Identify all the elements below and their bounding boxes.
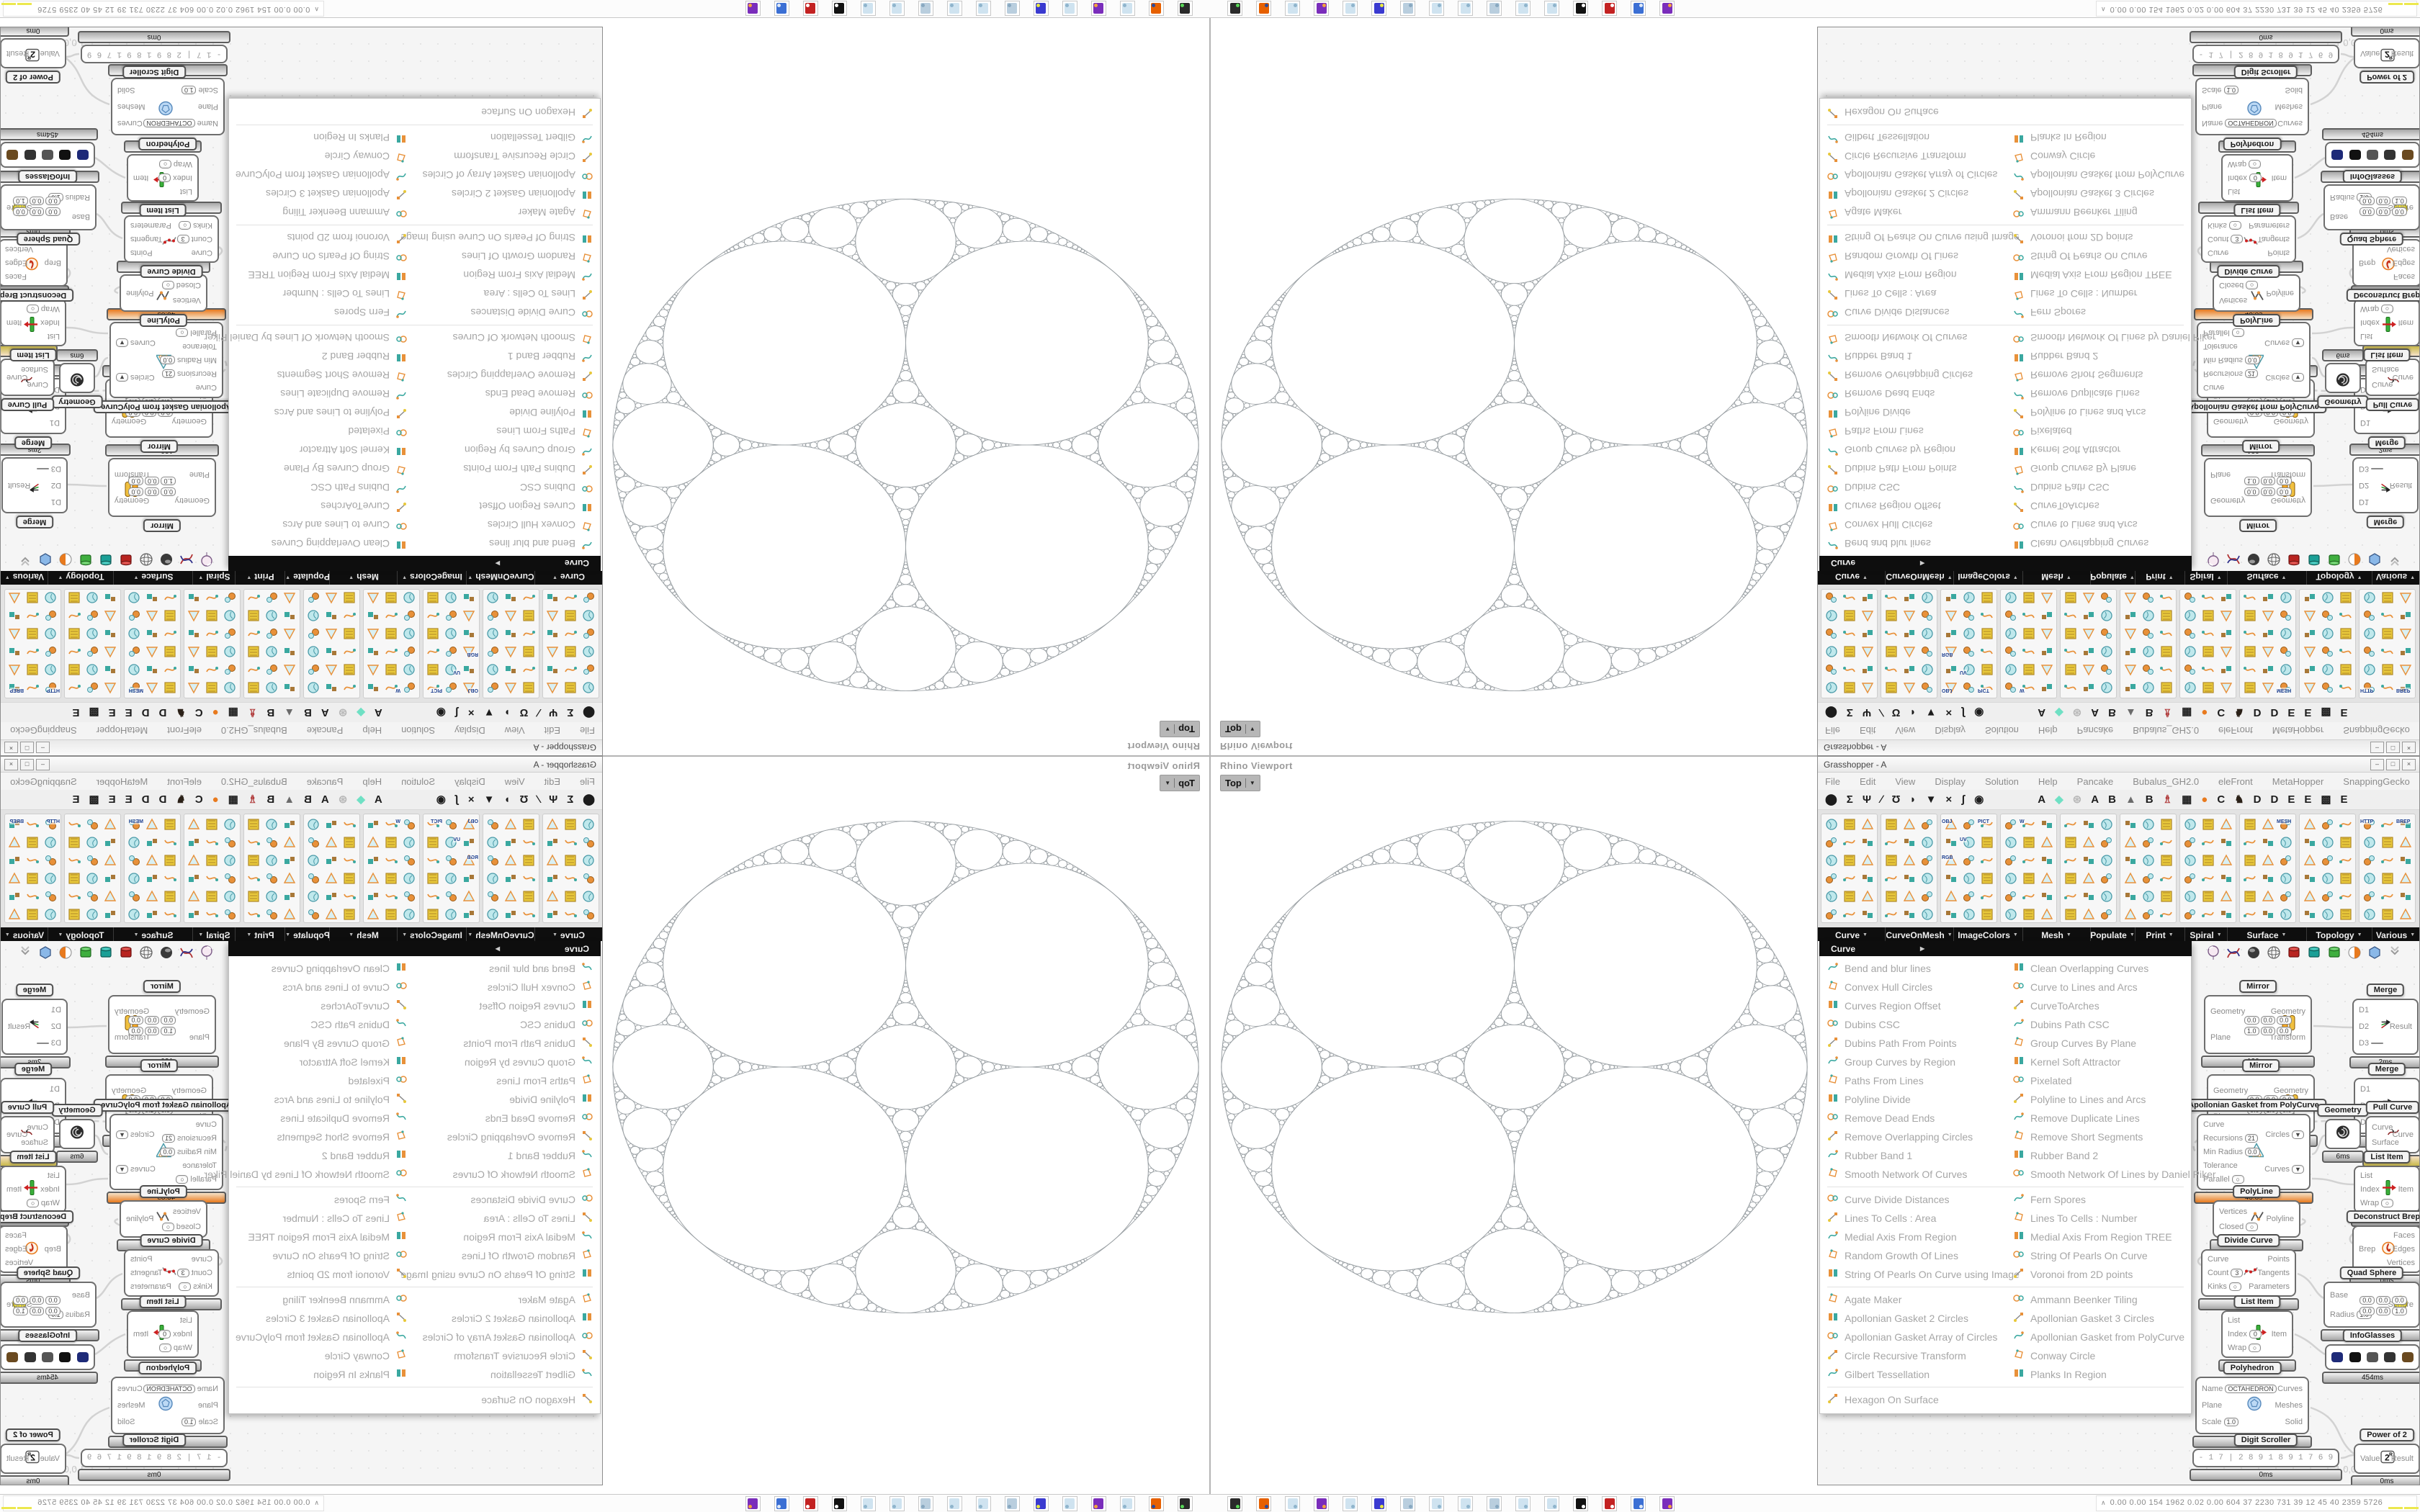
tab-icon[interactable]: A	[321, 707, 329, 718]
menu-item[interactable]: Smooth Network Of Curves	[1827, 1165, 1967, 1184]
palette-icon[interactable]	[1942, 833, 1960, 851]
palette-icon[interactable]	[323, 905, 341, 923]
plane-value[interactable]: 1.0	[2244, 477, 2259, 485]
tab-icon[interactable]: B	[304, 794, 312, 805]
menu-item[interactable]: String Of Pearls On Curve	[272, 247, 407, 266]
palette-icon[interactable]	[161, 905, 179, 923]
palette-icon[interactable]	[544, 625, 562, 643]
palette-icon[interactable]	[1882, 851, 1900, 869]
palette-icon[interactable]	[1822, 625, 1840, 643]
palette-icon[interactable]	[84, 905, 102, 923]
palette-icon[interactable]	[502, 815, 520, 833]
taskbar-notepad-icon[interactable]	[1515, 1496, 1531, 1511]
tab-icon[interactable]: ▦	[228, 794, 238, 805]
menu-item[interactable]: String Of Pearls On Curve using Image	[1827, 228, 2020, 247]
palette-icon[interactable]	[2318, 815, 2336, 833]
group-print[interactable]: Print▼	[235, 927, 285, 942]
group-various[interactable]: Various▼	[0, 570, 48, 585]
param-value[interactable]: ○	[179, 221, 191, 230]
digit[interactable]: -	[2199, 50, 2204, 58]
menu-item[interactable]: Apollonian Gasket 3 Circles	[2013, 184, 2154, 203]
palette-icon[interactable]	[400, 869, 418, 887]
palette-icon[interactable]	[2121, 589, 2139, 607]
menu-item[interactable]: Remove Dead Ends	[1827, 384, 1935, 403]
menu-item[interactable]: String Of Pearls On Curve using Image	[1827, 1265, 2020, 1284]
palette-icon[interactable]	[2336, 833, 2354, 851]
menu-item[interactable]: Conway Circle	[325, 1346, 407, 1365]
menu-item[interactable]: Remove Dead Ends	[485, 384, 593, 403]
palette-icon[interactable]	[42, 643, 60, 661]
palette-icon[interactable]	[580, 607, 598, 625]
palette-icon[interactable]	[2300, 679, 2318, 697]
component-geometry[interactable]	[59, 1119, 95, 1149]
infoglasses-icon[interactable]	[2331, 150, 2343, 160]
taskbar-firefox-icon[interactable]	[1149, 1496, 1164, 1511]
palette-icon[interactable]	[2396, 833, 2414, 851]
palette-icon[interactable]	[502, 869, 520, 887]
palette-icon[interactable]	[484, 905, 502, 923]
taskbar-red-app-icon[interactable]	[1602, 1, 1617, 16]
palette-icon[interactable]	[66, 887, 84, 905]
digit[interactable]: 9	[2259, 1454, 2264, 1462]
palette-icon[interactable]	[484, 661, 502, 679]
digit[interactable]: 9	[157, 50, 162, 58]
palette-icon[interactable]	[323, 643, 341, 661]
menu-item[interactable]: Gilbert Tessellation	[490, 1365, 593, 1384]
tab-icon[interactable]: ▼	[484, 794, 495, 805]
menu-item[interactable]: Pixelated	[348, 422, 407, 441]
taskbar-notepad-icon[interactable]	[1062, 1496, 1077, 1511]
group-populate[interactable]: Populate▼	[2090, 570, 2136, 585]
palette-icon[interactable]	[2318, 887, 2336, 905]
palette-icon[interactable]	[2277, 905, 2295, 923]
palette-icon[interactable]	[1840, 607, 1858, 625]
infoglasses-icon[interactable]	[6, 1352, 18, 1362]
menu-item[interactable]: Fern Spores	[2013, 303, 2086, 322]
digit[interactable]: 8	[167, 1454, 172, 1462]
palette-icon[interactable]	[1858, 589, 1876, 607]
palette-icon[interactable]	[341, 905, 359, 923]
palette-icon[interactable]	[1918, 905, 1936, 923]
menu-item[interactable]: Medial Axis From Region TREE	[248, 1228, 407, 1246]
palette-icon[interactable]	[2061, 851, 2079, 869]
menu-snappinggecko[interactable]: SnappingGecko	[2343, 726, 2410, 737]
palette-icon[interactable]	[281, 815, 299, 833]
digit[interactable]: 8	[2278, 50, 2283, 58]
param-value[interactable]: 0.0	[160, 1148, 175, 1156]
tab-icon[interactable]: E	[72, 794, 79, 805]
taskbar-notepad-icon[interactable]	[1458, 1496, 1473, 1511]
tab-icon[interactable]: E	[125, 794, 133, 805]
tab-icon[interactable]: ʃ	[1961, 794, 1965, 805]
palette-icon[interactable]	[102, 905, 120, 923]
palette-icon[interactable]	[382, 643, 400, 661]
palette-icon[interactable]	[2121, 607, 2139, 625]
palette-icon[interactable]	[1960, 905, 1978, 923]
menu-item[interactable]: Ammann Beenker Tiling	[282, 203, 407, 222]
plane-value[interactable]: 0.0	[145, 1027, 160, 1035]
node-canvas[interactable]: MirrorGeometryPlaneGeometryTransform0.00…	[1, 27, 602, 571]
palette-icon[interactable]	[424, 815, 442, 833]
palette-icon[interactable]	[2157, 625, 2175, 643]
group-topology[interactable]: Topology▼	[48, 927, 114, 942]
palette-icon[interactable]	[1822, 833, 1840, 851]
digit[interactable]: 8	[2278, 1454, 2283, 1462]
menu-item[interactable]: Paths From Lines	[1827, 422, 1924, 441]
palette-icon[interactable]	[1942, 607, 1960, 625]
tab-icon[interactable]: Ʊ	[520, 794, 529, 805]
palette-icon[interactable]	[245, 679, 263, 697]
tab-icon[interactable]: ◆	[357, 707, 365, 718]
group-surface[interactable]: Surface▼	[113, 570, 193, 585]
component-poly[interactable]: NameOCTAHEDRONPlaneScale1.0CurvesMeshesS…	[111, 1377, 225, 1434]
tab-icon[interactable]: ⬤	[583, 707, 595, 718]
digit[interactable]: 7	[2308, 1454, 2313, 1462]
taskbar-notepad-icon[interactable]	[1544, 1496, 1559, 1511]
palette-icon[interactable]	[1918, 851, 1936, 869]
palette-icon[interactable]	[382, 869, 400, 887]
taskbar-ink-app-icon[interactable]	[1573, 1, 1588, 16]
palette-icon[interactable]	[161, 589, 179, 607]
dropdown-header[interactable]: Curve▶	[228, 941, 601, 956]
component-pow[interactable]: ValueResult2R	[0, 1444, 66, 1474]
palette-icon[interactable]	[2020, 905, 2038, 923]
palette-icon[interactable]	[84, 815, 102, 833]
component-divide[interactable]: CurveCount3Kinks○PointsTangentsParameter…	[2201, 1249, 2296, 1297]
plane-value[interactable]: 0.0	[13, 207, 28, 216]
menu-view[interactable]: View	[505, 776, 525, 787]
tab-icon[interactable]: A	[2091, 794, 2099, 805]
plane-value[interactable]: 1.0	[13, 197, 28, 205]
tab-icon[interactable]: A	[2091, 707, 2099, 718]
tab-icon[interactable]: ▼	[1926, 707, 1937, 718]
plane-value[interactable]: 0.0	[30, 1296, 45, 1305]
palette-icon[interactable]	[484, 643, 502, 661]
group-curveonmesh[interactable]: CurveOnMesh▼	[1885, 927, 1954, 942]
palette-icon[interactable]	[245, 851, 263, 869]
plane-value[interactable]: 0.0	[30, 207, 45, 216]
palette-icon[interactable]	[2157, 589, 2175, 607]
group-surface[interactable]: Surface▼	[113, 927, 193, 942]
menu-item[interactable]: Lines To Cells : Area	[484, 1209, 593, 1228]
palette-icon[interactable]	[1900, 643, 1918, 661]
apollonian-gasket-drawing[interactable]	[606, 813, 1205, 1321]
palette-icon[interactable]	[502, 643, 520, 661]
menu-metahopper[interactable]: MetaHopper	[97, 726, 148, 737]
maximize-button[interactable]: □	[2386, 759, 2400, 770]
menu-item[interactable]: Polyline Divide	[509, 1090, 593, 1109]
menu-item[interactable]: Dubins Path CSC	[310, 478, 407, 497]
palette-icon[interactable]	[2259, 833, 2277, 851]
palette-icon[interactable]	[24, 887, 42, 905]
palette-icon[interactable]	[143, 815, 161, 833]
param-value[interactable]: OCTAHEDRON	[2225, 1385, 2276, 1393]
menu-pancake[interactable]: Pancake	[2077, 726, 2114, 737]
taskbar-owl-app-icon[interactable]	[1091, 1, 1106, 16]
palette-icon[interactable]	[1942, 905, 1960, 923]
palette-icon[interactable]	[1840, 851, 1858, 869]
palette-icon[interactable]	[1822, 607, 1840, 625]
menu-item[interactable]: Voronoi from 2D points	[2013, 1265, 2133, 1284]
plane-value[interactable]: 0.0	[45, 1307, 60, 1315]
palette-icon[interactable]	[323, 661, 341, 679]
palette-icon[interactable]	[2259, 679, 2277, 697]
tab-icon[interactable]: B	[304, 707, 312, 718]
menu-item[interactable]: Conway Circle	[2013, 147, 2095, 166]
param-value[interactable]: ○	[2249, 1344, 2261, 1352]
palette-icon[interactable]	[2378, 905, 2396, 923]
group-imagecolors[interactable]: ImageColors▼	[397, 570, 467, 585]
digit[interactable]: -	[2199, 1454, 2204, 1462]
tab-icon[interactable]: A	[321, 794, 329, 805]
digit[interactable]: 9	[2259, 50, 2264, 58]
palette-icon[interactable]	[341, 815, 359, 833]
palette-icon[interactable]	[544, 679, 562, 697]
palette-icon[interactable]	[185, 607, 203, 625]
palette-icon[interactable]	[2097, 625, 2115, 643]
param-value[interactable]: 1.0	[181, 1418, 197, 1426]
palette-icon[interactable]	[2157, 851, 2175, 869]
tab-icon[interactable]: ×	[468, 707, 475, 718]
palette-icon[interactable]	[2079, 643, 2097, 661]
taskbar-scroll-icon[interactable]	[1005, 1, 1020, 16]
taskbar-scroll-icon[interactable]	[1400, 1496, 1415, 1511]
param-value[interactable]: 0	[2249, 174, 2262, 182]
menu-bubalus_gh2.0[interactable]: Bubalus_GH2.0	[221, 776, 287, 787]
palette-icon[interactable]	[2300, 887, 2318, 905]
palette-icon[interactable]	[281, 851, 299, 869]
palette-icon[interactable]	[2396, 661, 2414, 679]
taskbar-notepad-icon[interactable]	[1458, 1, 1473, 16]
palette-icon[interactable]	[1882, 905, 1900, 923]
param-value[interactable]: ▼	[116, 1130, 128, 1139]
menu-item[interactable]: Curve to Lines and Arcs	[282, 516, 407, 534]
palette-icon[interactable]	[2199, 815, 2217, 833]
minimize-button[interactable]: –	[2370, 759, 2384, 770]
group-mesh[interactable]: Mesh▼	[2022, 927, 2091, 942]
palette-icon[interactable]	[221, 851, 239, 869]
tab-icon[interactable]: A	[375, 794, 382, 805]
palette-icon[interactable]	[544, 607, 562, 625]
viewport-top-button[interactable]: Top▼	[1220, 721, 1260, 737]
palette-icon[interactable]	[2396, 905, 2414, 923]
tab-icon[interactable]: ♗	[248, 794, 257, 805]
palette-icon[interactable]	[245, 905, 263, 923]
component-merge[interactable]: D1D2D3 Result	[1, 999, 68, 1055]
menu-item[interactable]: Lines To Cells : Number	[283, 1209, 407, 1228]
palette-icon[interactable]	[2139, 607, 2157, 625]
sphere-orange-icon[interactable]	[58, 552, 73, 567]
palette-icon[interactable]	[1978, 887, 1996, 905]
tab-icon[interactable]: ▲	[284, 794, 295, 805]
plane-value[interactable]: 0.0	[145, 477, 160, 485]
hexagon-blue-icon[interactable]	[2367, 945, 2383, 960]
palette-icon[interactable]	[2061, 833, 2079, 851]
palette-icon[interactable]	[2318, 625, 2336, 643]
palette-icon[interactable]	[460, 887, 478, 905]
menu-item[interactable]: Polyline Divide	[509, 403, 593, 422]
palette-icon[interactable]	[323, 887, 341, 905]
tab-icon[interactable]: B	[2108, 707, 2116, 718]
menu-item[interactable]: Lines To Cells : Number	[283, 284, 407, 303]
component-listitem[interactable]: ListIndex0Wrap○Item	[127, 154, 199, 202]
palette-icon[interactable]	[281, 661, 299, 679]
menu-pancake[interactable]: Pancake	[307, 726, 344, 737]
palette-icon[interactable]	[185, 589, 203, 607]
palette-icon[interactable]	[2020, 833, 2038, 851]
menu-item[interactable]: Group Curves By Plane	[284, 459, 407, 478]
menu-edit[interactable]: Edit	[544, 776, 560, 787]
menu-item[interactable]: Pixelated	[2013, 1071, 2072, 1090]
digit[interactable]: 1	[207, 50, 212, 58]
menu-item[interactable]: Random Growth Of Lines	[462, 1246, 593, 1265]
palette-icon[interactable]	[1822, 589, 1840, 607]
palette-icon[interactable]	[2038, 607, 2056, 625]
palette-icon[interactable]	[2259, 887, 2277, 905]
palette-icon[interactable]	[2318, 607, 2336, 625]
tab-icon[interactable]: Σ	[567, 794, 573, 805]
tab-icon[interactable]: ▦	[2182, 707, 2192, 718]
palette-icon[interactable]	[2217, 625, 2235, 643]
param-value[interactable]: ○	[2232, 1175, 2244, 1184]
palette-icon[interactable]	[2360, 625, 2378, 643]
palette-icon[interactable]	[1978, 851, 1996, 869]
palette-icon[interactable]	[245, 661, 263, 679]
digit[interactable]: 9	[127, 1454, 132, 1462]
digit[interactable]: 7	[2218, 1454, 2223, 1462]
palette-icon[interactable]	[323, 607, 341, 625]
param-value[interactable]: ○	[2229, 221, 2241, 230]
plane-value[interactable]: 1.0	[13, 1307, 28, 1315]
palette-icon[interactable]	[1882, 607, 1900, 625]
palette-icon[interactable]	[341, 851, 359, 869]
menu-metahopper[interactable]: MetaHopper	[2272, 726, 2324, 737]
component-mirror[interactable]: GeometryPlaneGeometryTransform0.00.00.01…	[2204, 995, 2312, 1054]
menu-snappinggecko[interactable]: SnappingGecko	[10, 726, 77, 737]
palette-icon[interactable]	[484, 815, 502, 833]
group-spiral[interactable]: Spiral▼	[192, 570, 236, 585]
menu-snappinggecko[interactable]: SnappingGecko	[10, 776, 77, 787]
palette-icon[interactable]	[442, 887, 460, 905]
palette-icon[interactable]	[2079, 625, 2097, 643]
palette-icon[interactable]	[84, 679, 102, 697]
palette-icon[interactable]	[460, 905, 478, 923]
plane-value[interactable]: 0.0	[2359, 207, 2375, 216]
plane-value[interactable]: 0.0	[2392, 207, 2407, 216]
palette-icon[interactable]	[2396, 887, 2414, 905]
palette-icon[interactable]	[42, 833, 60, 851]
palette-icon[interactable]	[1900, 851, 1918, 869]
palette-icon[interactable]	[2079, 887, 2097, 905]
palette-icon[interactable]	[1960, 887, 1978, 905]
tab-icon[interactable]: D	[142, 707, 150, 718]
palette-icon[interactable]	[484, 869, 502, 887]
menu-item[interactable]: Voronoi from 2D points	[287, 228, 407, 247]
palette-icon[interactable]	[2020, 625, 2038, 643]
palette-icon[interactable]	[1900, 589, 1918, 607]
palette-icon[interactable]	[1882, 887, 1900, 905]
plane-value[interactable]: 0.0	[2261, 1027, 2276, 1035]
menu-item[interactable]: Curve Divide Distances	[471, 1190, 593, 1209]
param-value[interactable]: 3	[177, 235, 189, 243]
palette-icon[interactable]	[66, 589, 84, 607]
palette-icon[interactable]	[502, 589, 520, 607]
palette-icon[interactable]	[1960, 589, 1978, 607]
palette-icon[interactable]	[2181, 679, 2199, 697]
group-surface[interactable]: Surface▼	[2227, 927, 2307, 942]
palette-icon[interactable]	[6, 833, 24, 851]
plane-value[interactable]: 1.0	[161, 477, 176, 485]
tab-icon[interactable]: ⬤	[1825, 794, 1837, 805]
menu-item[interactable]: Voronoi from 2D points	[287, 1265, 407, 1284]
palette-icon[interactable]	[544, 869, 562, 887]
param-value[interactable]: ○	[162, 1223, 174, 1231]
palette-icon[interactable]	[161, 815, 179, 833]
palette-icon[interactable]	[580, 851, 598, 869]
taskbar-notepad-icon[interactable]	[1429, 1496, 1444, 1511]
palette-icon[interactable]	[544, 661, 562, 679]
palette-icon[interactable]	[1978, 679, 1996, 697]
menu-item[interactable]: Medial Axis From Region	[463, 266, 593, 284]
menu-help[interactable]: Help	[2038, 776, 2058, 787]
taskbar-red-app-icon[interactable]	[803, 1496, 818, 1511]
palette-icon[interactable]	[6, 589, 24, 607]
palette-icon[interactable]	[66, 905, 84, 923]
palette-icon[interactable]	[2241, 643, 2259, 661]
menu-item[interactable]: Apollonian Gasket from PolyCurve	[2013, 1328, 2184, 1346]
palette-icon[interactable]	[305, 833, 323, 851]
menu-item[interactable]: Rubber Band 1	[508, 347, 593, 366]
palette-icon[interactable]	[2241, 679, 2259, 697]
palette-icon[interactable]	[2199, 625, 2217, 643]
palette-icon[interactable]	[66, 815, 84, 833]
component-mirror[interactable]: GeometryPlaneGeometryTransform0.00.00.01…	[2204, 458, 2312, 517]
infoglasses-icon[interactable]	[77, 150, 89, 160]
taskbar-app-green-icon[interactable]	[1227, 1, 1242, 16]
infoglasses-icon[interactable]	[2384, 150, 2396, 160]
palette-icon[interactable]	[185, 815, 203, 833]
digit[interactable]: 2	[2238, 50, 2244, 58]
component-poly[interactable]: NameOCTAHEDRONPlaneScale1.0CurvesMeshesS…	[2195, 78, 2309, 135]
menu-item[interactable]: Planks In Region	[313, 1365, 407, 1384]
palette-icon[interactable]	[2318, 679, 2336, 697]
palette-icon[interactable]	[400, 589, 418, 607]
digit[interactable]: 7	[2308, 50, 2313, 58]
palette-icon[interactable]	[2396, 625, 2414, 643]
menu-bubalus_gh2.0[interactable]: Bubalus_GH2.0	[2133, 726, 2199, 737]
palette-icon[interactable]	[305, 607, 323, 625]
taskbar-notepad-icon[interactable]	[1429, 1, 1444, 16]
plane-value[interactable]: 1.0	[2392, 1307, 2407, 1315]
palette-icon[interactable]	[544, 643, 562, 661]
palette-icon[interactable]	[2097, 643, 2115, 661]
menu-item[interactable]: Ammann Beenker Tiling	[2013, 203, 2138, 222]
param-value[interactable]: 0.0	[2245, 356, 2260, 364]
tab-icon[interactable]: E	[109, 707, 116, 718]
palette-icon[interactable]	[580, 815, 598, 833]
palette-icon[interactable]	[502, 661, 520, 679]
apollonian-gasket-drawing[interactable]	[1215, 191, 1814, 699]
tab-icon[interactable]: Ʊ	[520, 707, 529, 718]
menu-item[interactable]: Group Curves by Region	[465, 441, 593, 459]
palette-icon[interactable]	[2121, 905, 2139, 923]
palette-icon[interactable]	[2079, 679, 2097, 697]
group-curve[interactable]: Curve▼	[534, 927, 602, 942]
palette-icon[interactable]	[2360, 643, 2378, 661]
palette-icon[interactable]	[364, 661, 382, 679]
menu-item[interactable]: Hexagon On Surface	[481, 103, 593, 122]
palette-icon[interactable]	[2378, 887, 2396, 905]
